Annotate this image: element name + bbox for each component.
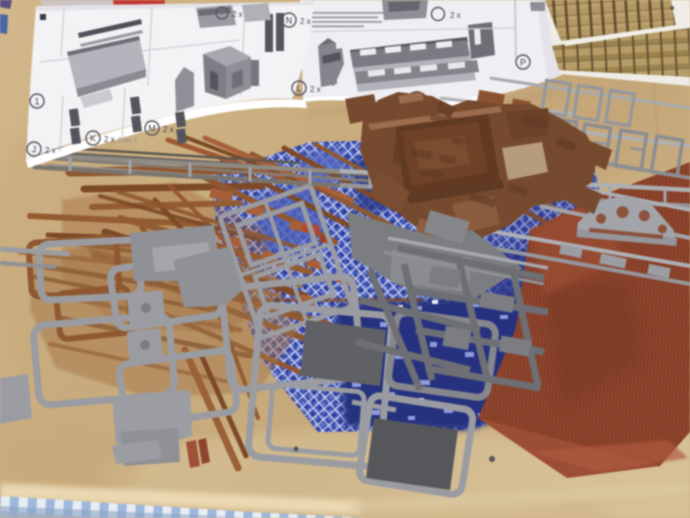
svg-text:J: J: [32, 145, 37, 155]
svg-text:2 x: 2 x: [310, 85, 321, 94]
svg-text:2 x: 2 x: [300, 17, 311, 26]
svg-text:L: L: [296, 84, 301, 94]
svg-text:2 x: 2 x: [45, 146, 56, 155]
svg-text:N: N: [286, 16, 293, 26]
svg-text:2 x: 2 x: [104, 135, 115, 144]
svg-text:Seite 3: Seite 3: [118, 138, 137, 144]
svg-text:P: P: [520, 58, 526, 68]
svg-text:M: M: [148, 124, 156, 134]
svg-text:K: K: [90, 134, 96, 144]
svg-text:2 x: 2 x: [163, 125, 174, 134]
svg-text:2 x: 2 x: [450, 11, 461, 20]
svg-text:2 x: 2 x: [232, 10, 243, 19]
svg-text:1: 1: [34, 97, 39, 107]
